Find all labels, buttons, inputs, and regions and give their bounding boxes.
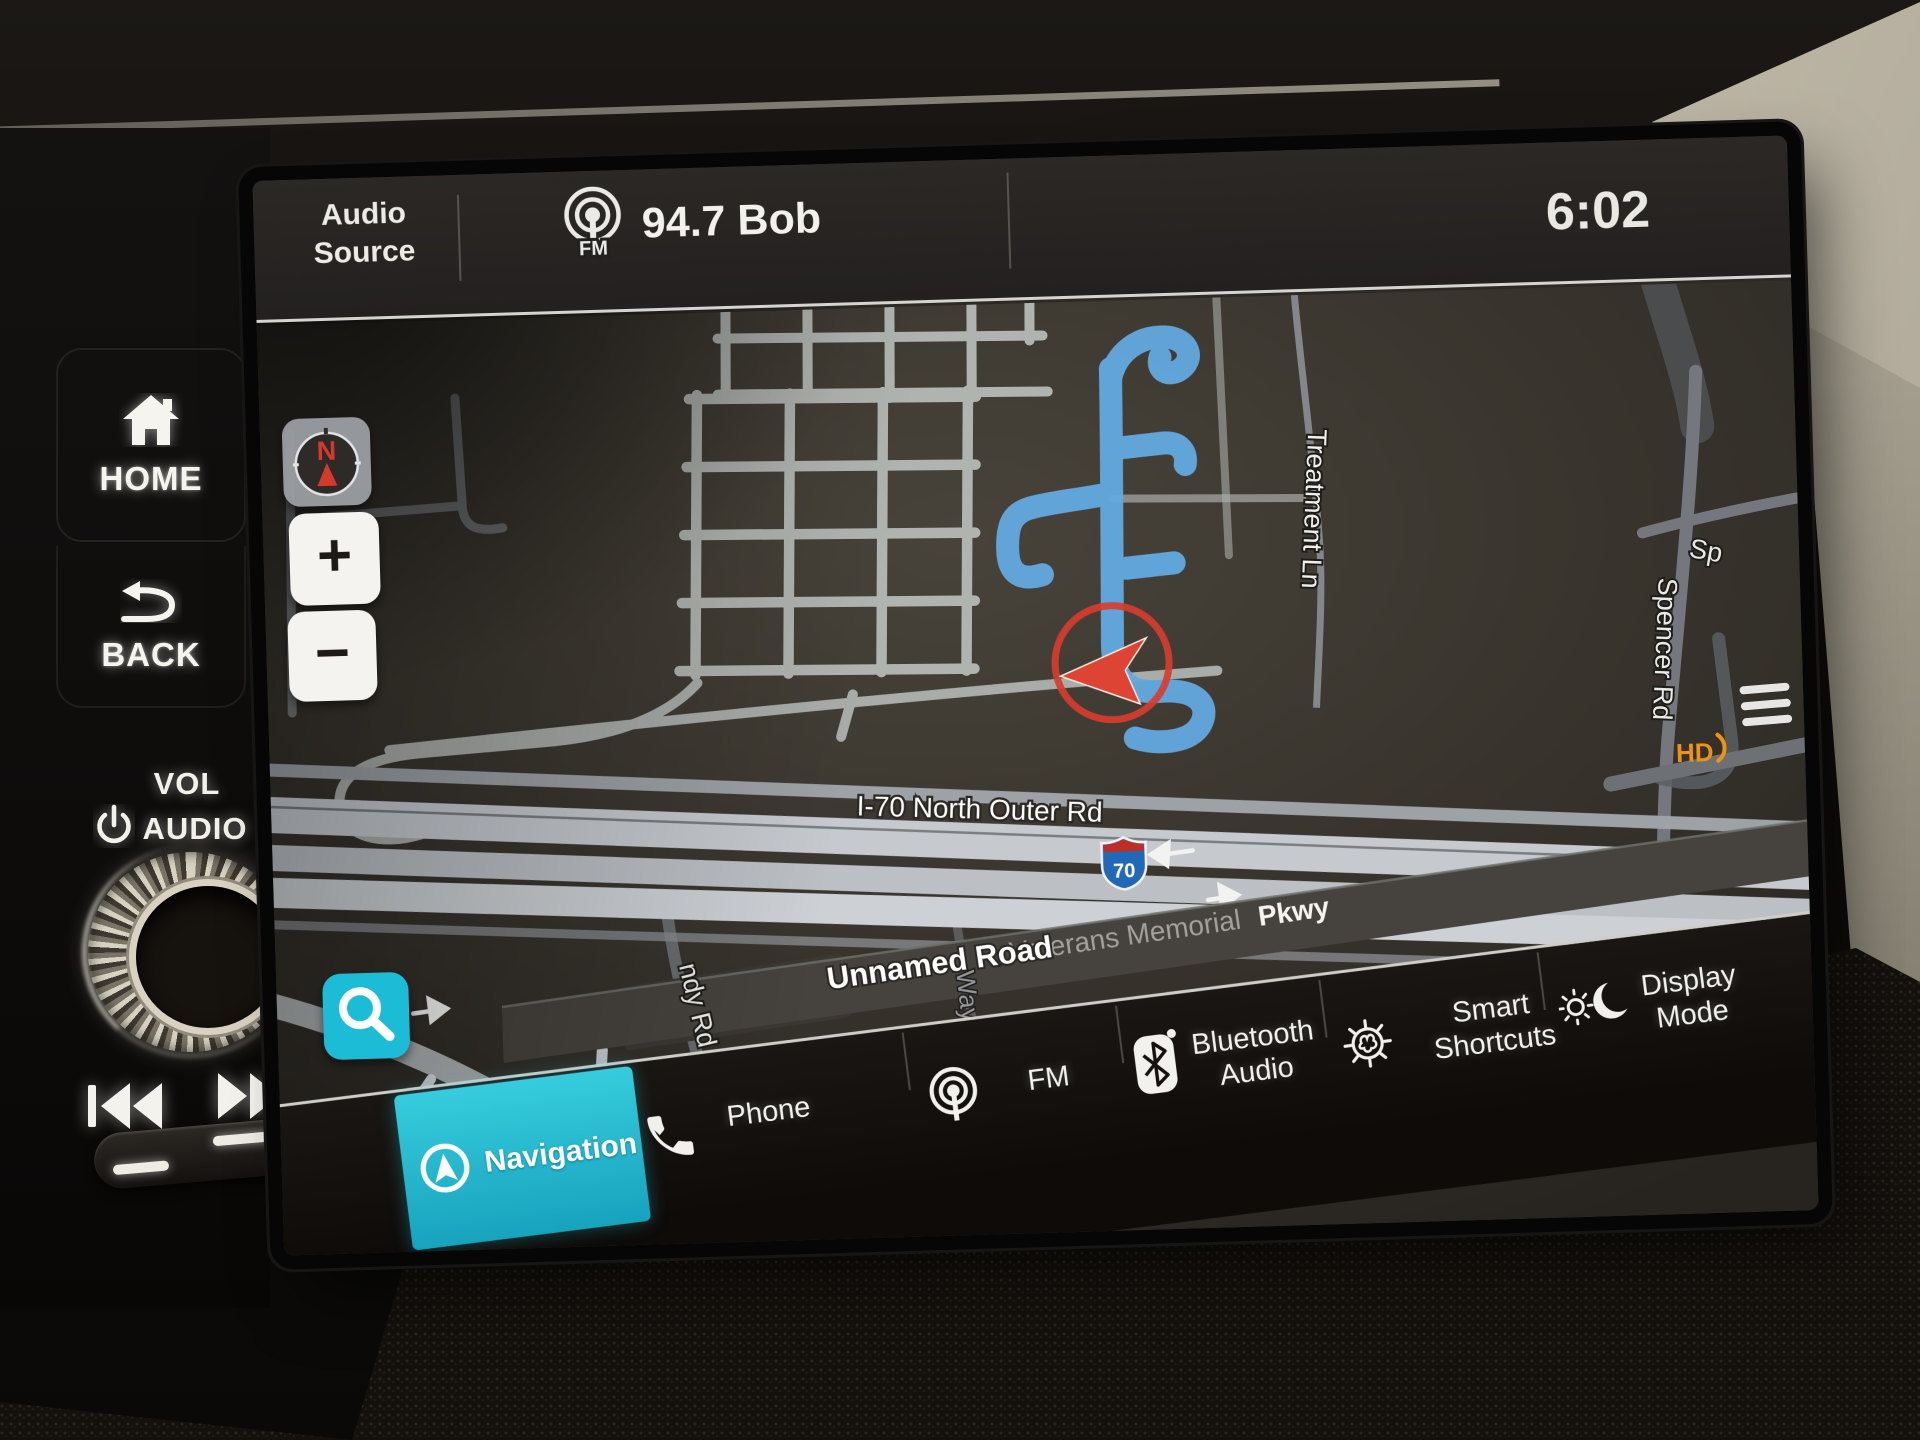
home-label: HOME — [100, 460, 203, 498]
fm-badge: FM — [579, 237, 609, 260]
zoom-in-glyph: + — [316, 520, 353, 590]
back-label: BACK — [101, 636, 200, 674]
tab-bluetooth-audio-label[interactable]: Bluetooth Audio — [1179, 1012, 1331, 1098]
rocker-dash-right — [213, 1131, 272, 1146]
navigation-compass-icon — [414, 1137, 477, 1200]
shield-number: 70 — [1113, 860, 1136, 883]
appbar-divider — [1115, 1006, 1124, 1064]
compass-north-letter: N — [316, 436, 336, 467]
dashboard-photo: { "status_bar": { "audio_source": "Audio… — [0, 0, 1920, 1440]
i70-shield: 70 — [1101, 837, 1147, 890]
volume-knob[interactable] — [88, 852, 293, 1052]
i70-outer-rd-label: I-70 North Outer Rd — [856, 790, 1103, 827]
infotainment-screen: Audio Source FM 94.7 Bob 6:02 — [252, 135, 1818, 1255]
compass-button[interactable]: N — [281, 417, 372, 508]
fm-antenna-icon: FM — [556, 184, 630, 267]
bluetooth-icon[interactable] — [1132, 1033, 1179, 1096]
hd-radio-letters: HD — [1676, 737, 1714, 768]
audio-source-button[interactable]: Audio Source — [283, 193, 445, 273]
map-search-button[interactable] — [322, 972, 411, 1061]
audio-label: AUDIO — [143, 811, 248, 847]
sp-label: Sp — [1687, 533, 1725, 568]
bluetooth-status-dot — [1166, 1028, 1176, 1038]
treatment-ln-label: Treatment Ln — [1296, 429, 1332, 590]
clock: 6:02 — [1545, 180, 1651, 243]
volume-control-labels: VOL AUDIO — [70, 766, 270, 853]
zoom-out-glyph: − — [314, 617, 351, 687]
vol-label: VOL — [104, 766, 270, 802]
station-name: 94.7 Bob — [641, 194, 822, 248]
tab-navigation-active[interactable]: Navigation — [394, 1066, 652, 1251]
volume-knob-center — [136, 886, 280, 1028]
tab-navigation-label: Navigation — [482, 1126, 639, 1180]
phone-icon[interactable] — [639, 1104, 698, 1169]
status-divider-2 — [1006, 173, 1011, 269]
appbar-divider — [902, 1032, 911, 1090]
power-icon — [93, 804, 135, 853]
lanes-icon — [1739, 683, 1792, 727]
back-button[interactable]: BACK — [56, 546, 246, 708]
tab-phone-label[interactable]: Phone — [712, 1088, 825, 1136]
home-icon — [119, 393, 183, 452]
zoom-out-button[interactable]: − — [287, 610, 378, 703]
back-icon — [120, 579, 182, 628]
status-divider — [457, 195, 462, 281]
spencer-rd-label: Spencer Rd — [1647, 577, 1683, 721]
tab-fm-label[interactable]: FM — [1012, 1057, 1086, 1100]
search-icon — [328, 978, 404, 1054]
fm-tab-icon[interactable] — [921, 1062, 987, 1134]
smart-shortcuts-icon[interactable] — [1335, 1011, 1400, 1081]
tab-smart-shortcuts-label[interactable]: Smart Shortcuts — [1407, 982, 1579, 1071]
rocker-dash-left — [113, 1160, 170, 1175]
home-button[interactable]: HOME — [56, 348, 246, 542]
bezel-top-edge — [0, 79, 1499, 134]
zoom-in-button[interactable]: + — [288, 511, 381, 606]
tab-display-mode-label[interactable]: Display Mode — [1622, 956, 1760, 1040]
